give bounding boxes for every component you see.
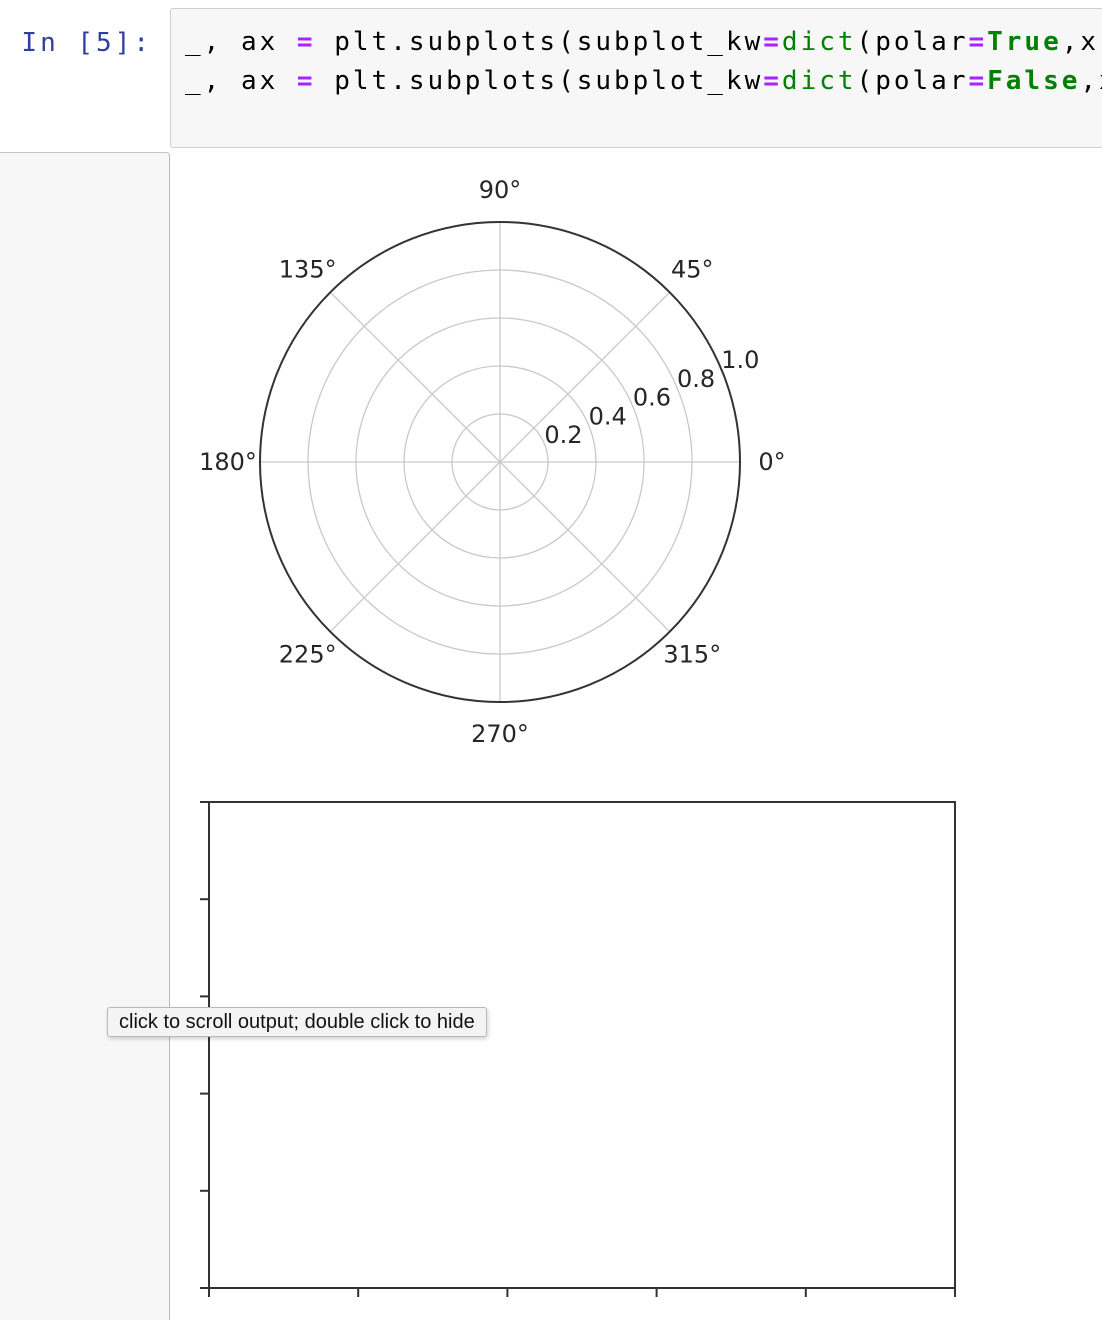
svg-text:180°: 180°: [199, 448, 257, 476]
code-lines: _, ax = plt.subplots(subplot_kw=dict(pol…: [171, 9, 1102, 101]
cartesian-plot-output: [170, 780, 990, 1320]
svg-text:270°: 270°: [471, 720, 529, 748]
svg-text:0.6: 0.6: [633, 384, 671, 412]
code-input-area[interactable]: _, ax = plt.subplots(subplot_kw=dict(pol…: [170, 8, 1102, 148]
svg-text:225°: 225°: [279, 640, 337, 668]
code-line: _, ax = plt.subplots(subplot_kw=dict(pol…: [185, 62, 1102, 101]
polar-plot-output: 0°45°90°135°180°225°270°315°0.20.40.60.8…: [170, 160, 830, 780]
svg-text:135°: 135°: [279, 256, 337, 284]
svg-text:45°: 45°: [671, 256, 714, 284]
code-line: _, ax = plt.subplots(subplot_kw=dict(pol…: [185, 23, 1102, 62]
svg-text:0.2: 0.2: [544, 421, 582, 449]
svg-text:0.4: 0.4: [589, 402, 627, 430]
svg-text:0.8: 0.8: [677, 365, 715, 393]
output-prompt-overlay[interactable]: [0, 152, 170, 1320]
svg-text:315°: 315°: [663, 640, 721, 668]
input-prompt: In [5]:: [0, 24, 152, 63]
svg-text:1.0: 1.0: [721, 346, 759, 374]
svg-text:90°: 90°: [479, 176, 522, 204]
svg-text:0°: 0°: [758, 448, 785, 476]
scroll-output-tooltip: click to scroll output; double click to …: [107, 1007, 487, 1037]
